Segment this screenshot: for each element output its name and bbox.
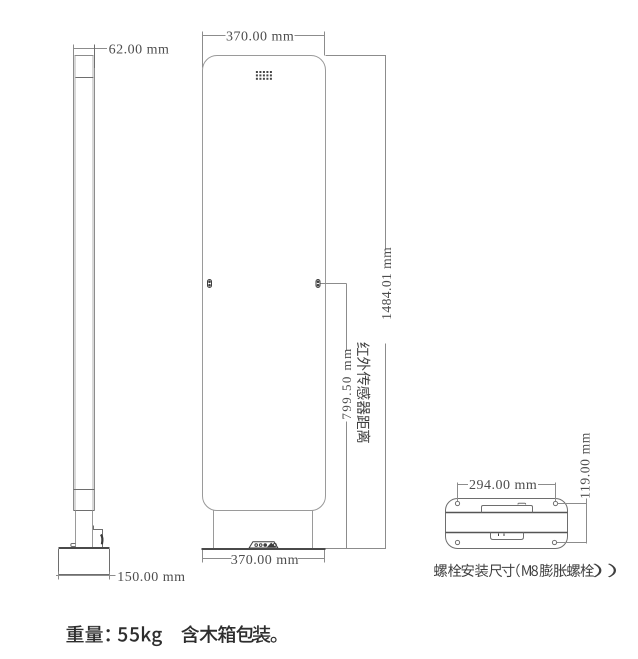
svg-text:150.00 mm: 150.00 mm [117,570,185,585]
svg-text:1484.01 mm: 1484.01 mm [379,247,394,320]
svg-text:799.50 mm: 799.50 mm [340,347,354,419]
svg-text:294.00 mm: 294.00 mm [469,478,537,493]
svg-text:370.00 mm: 370.00 mm [231,553,299,568]
svg-text:119.00 mm: 119.00 mm [578,432,593,499]
svg-text:370.00 mm: 370.00 mm [226,30,294,45]
svg-text:62.00 mm: 62.00 mm [109,43,170,58]
